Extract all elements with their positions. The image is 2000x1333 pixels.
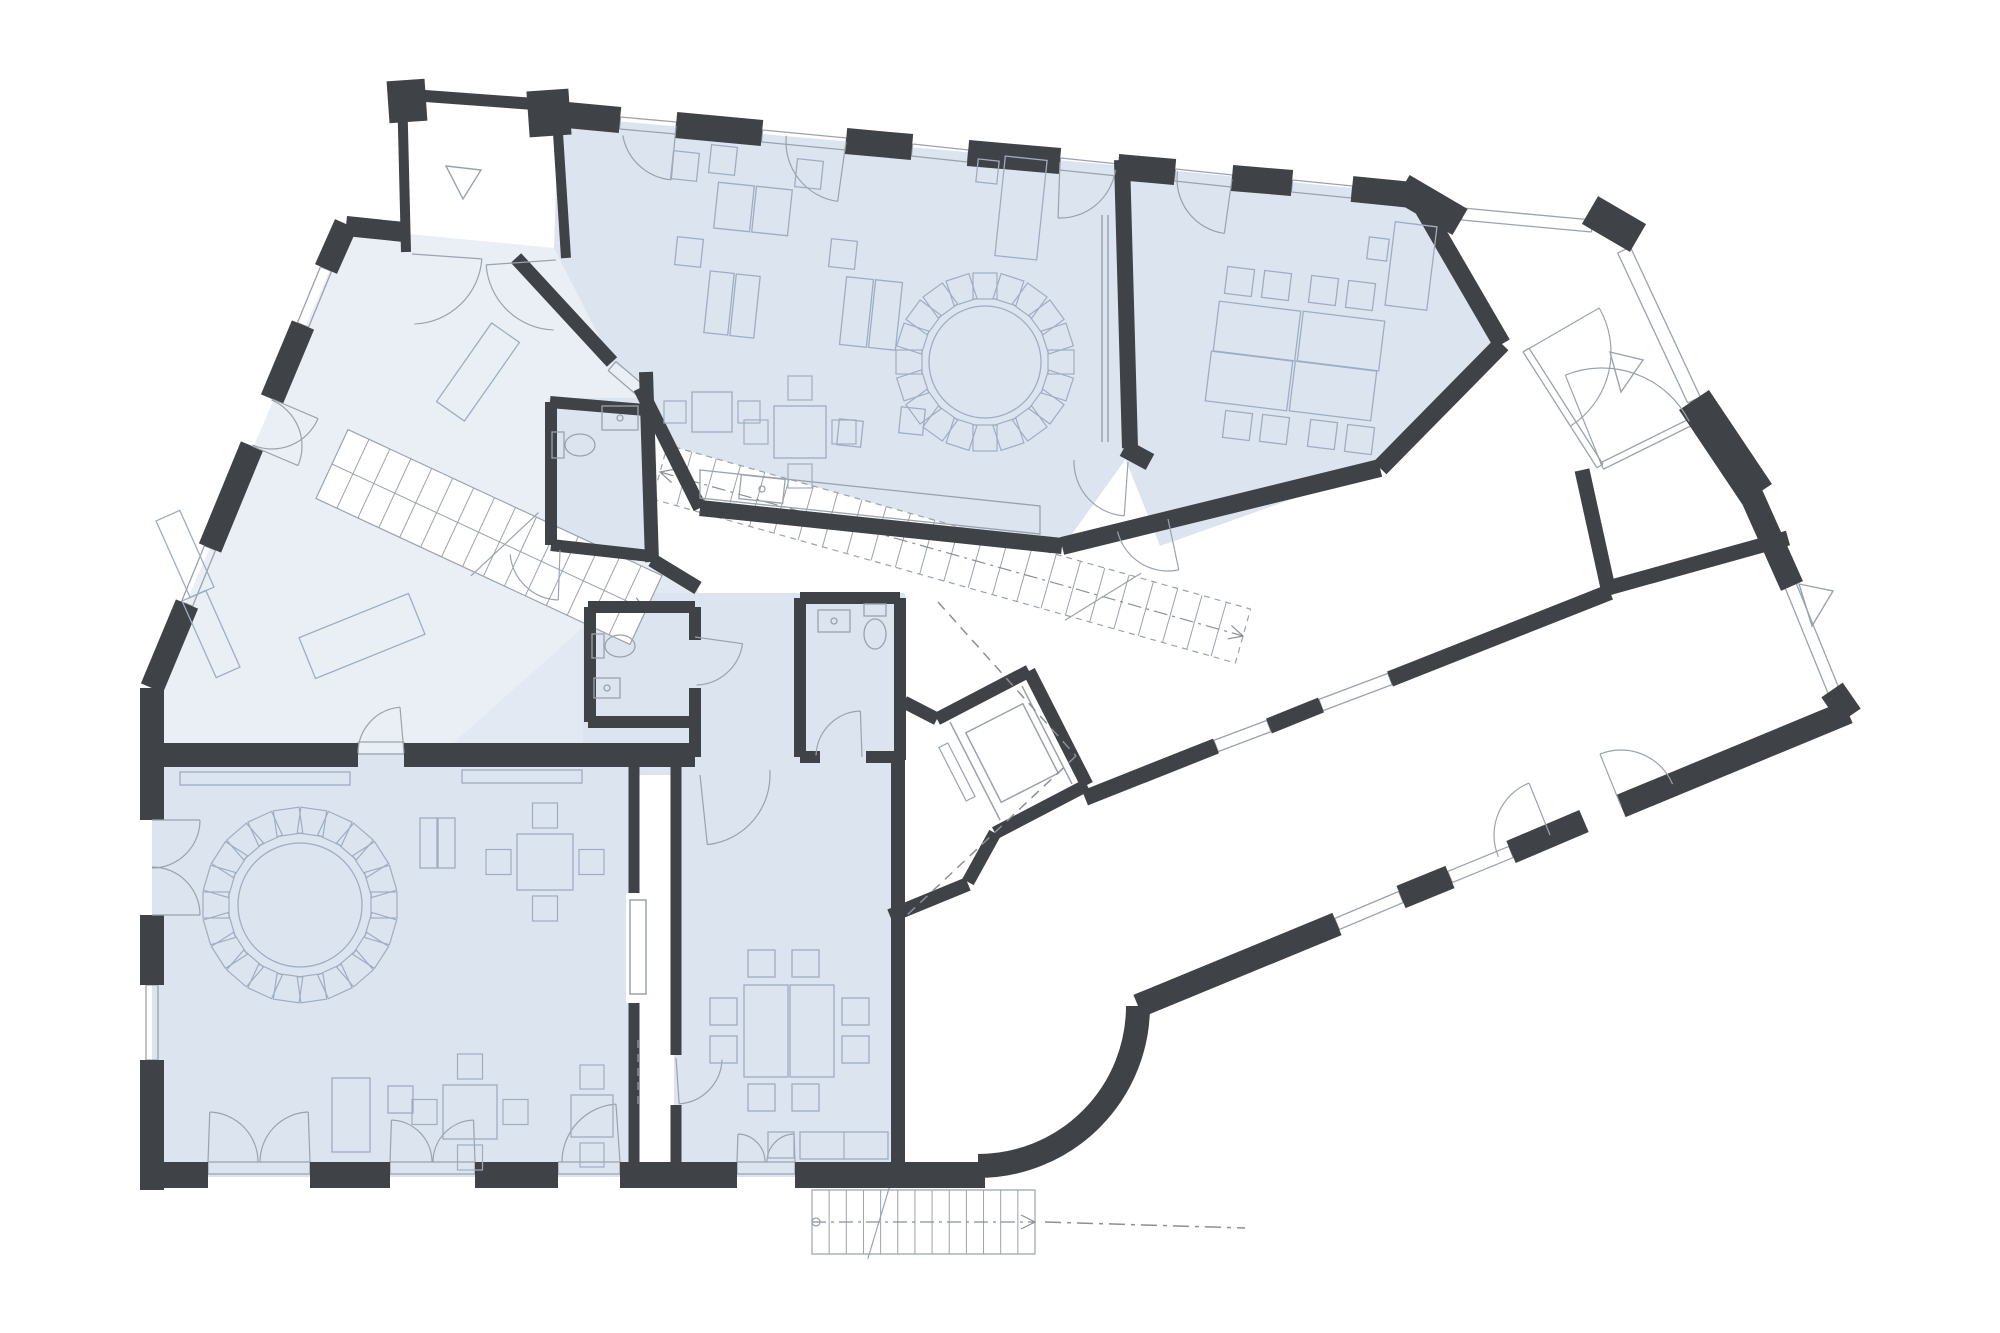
wall-wing-nw-3 — [1390, 592, 1610, 679]
wall-wing-nw-1 — [1085, 746, 1216, 798]
wall-wing-nw-2 — [1269, 705, 1321, 726]
wall-north-3 — [846, 141, 912, 147]
wall-north-1 — [556, 114, 620, 120]
window-northeast — [1463, 208, 1593, 220]
wall-w2-divider — [1122, 160, 1130, 448]
partition-foyer-1 — [1529, 348, 1603, 464]
wall-block-vestibule-l — [387, 79, 428, 124]
window-northeast — [1461, 220, 1591, 232]
window-wing-nw-2 — [1323, 685, 1392, 711]
door-w2-leaf — [1124, 462, 1128, 516]
wall-curve-southeast — [978, 1006, 1138, 1166]
room-lounge-south-fill — [674, 753, 900, 1177]
wall-corner-ne — [1590, 210, 1638, 238]
wall-wing-se-3 — [1401, 877, 1450, 897]
door-foyer-1 — [1571, 308, 1611, 426]
elevator-stub-2 — [968, 833, 995, 882]
window-wing-nw-2 — [1319, 673, 1388, 699]
wall-wing-se-2 — [1511, 821, 1584, 852]
window-wing-ne — [1784, 586, 1828, 694]
floor-plan-svg — [0, 0, 2000, 1333]
door-foyer-2-leaf — [1565, 375, 1602, 466]
entrance-marker-vestibule — [446, 166, 481, 199]
window-wing-se-2 — [1339, 903, 1403, 930]
window-east-foyer — [1630, 247, 1700, 397]
wall-atelier-top — [346, 226, 404, 232]
window-wing-nw-1 — [1218, 732, 1271, 752]
wall-wing-se-1 — [1621, 712, 1848, 806]
wall-north-2 — [676, 125, 762, 133]
divider-door-leaf — [630, 900, 646, 994]
door-foyer-1-leaf — [1523, 308, 1599, 352]
elevator-stub-1 — [904, 702, 937, 719]
window-north-1 — [621, 117, 677, 122]
door-foyer-2 — [1565, 368, 1689, 422]
wall-wing-se-4 — [1138, 924, 1337, 1006]
window-wing-se-2 — [1335, 891, 1399, 918]
door-wing-a-leaf — [1600, 754, 1621, 806]
wall-core-west — [646, 372, 652, 562]
window-wing-ne — [1796, 582, 1840, 690]
wall-north-6 — [1232, 178, 1292, 183]
window-wing-se-1 — [1448, 846, 1509, 871]
projection-dash-4 — [1045, 1222, 1245, 1228]
window-wing-se-1 — [1452, 858, 1513, 883]
wc-north-fill — [548, 398, 648, 548]
entrance-marker-wing — [1799, 584, 1833, 626]
window-wing-nw-1 — [1214, 720, 1267, 740]
floor-plan-canvas — [0, 0, 2000, 1333]
wall-w2-block — [1124, 448, 1150, 462]
entrance-marker-foyer — [1610, 352, 1643, 392]
